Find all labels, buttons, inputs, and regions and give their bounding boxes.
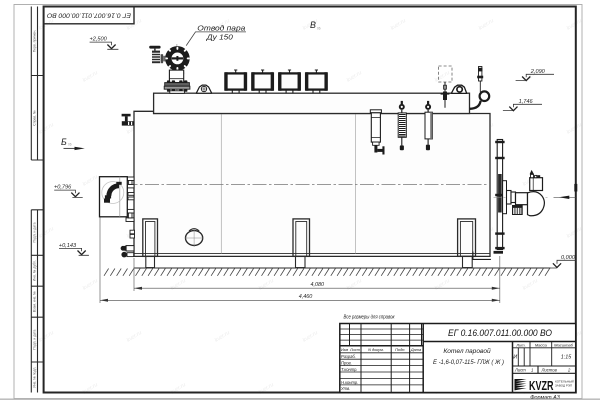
svg-text:Инв. № подл.: Инв. № подл. <box>32 367 36 388</box>
svg-text:+0,796: +0,796 <box>54 185 72 191</box>
svg-text:Дата: Дата <box>410 347 422 352</box>
svg-text:Ду 150: Ду 150 <box>206 32 234 41</box>
svg-text:Н.контр.: Н.контр. <box>341 380 358 385</box>
svg-text:N докум.: N докум. <box>368 347 384 352</box>
svg-text:Масштаб: Масштаб <box>554 342 573 347</box>
svg-text:Т.контр.: Т.контр. <box>341 367 358 372</box>
svg-text:Разраб.: Разраб. <box>341 354 356 359</box>
svg-text:1,746: 1,746 <box>519 99 534 105</box>
svg-text:Лист: Лист <box>349 347 361 352</box>
svg-text:Отвод пара: Отвод пара <box>197 23 245 32</box>
svg-text:+2,500: +2,500 <box>90 37 108 43</box>
svg-text:+0,143: +0,143 <box>59 243 77 249</box>
svg-text:06: 06 <box>317 27 321 31</box>
svg-text:Перв. примен.: Перв. примен. <box>32 30 36 53</box>
svg-text:Инв. № дубл.: Инв. № дубл. <box>32 260 36 281</box>
svg-text:06: 06 <box>68 143 72 147</box>
svg-text:Подп. и дата: Подп. и дата <box>32 222 36 242</box>
svg-text:4,080: 4,080 <box>311 282 325 288</box>
svg-text:Е -1,6-0,07-115- ГЛЖ ( Ж ): Е -1,6-0,07-115- ГЛЖ ( Ж ) <box>433 360 504 366</box>
svg-text:Масса: Масса <box>535 342 548 347</box>
svg-text:Лист: Лист <box>514 368 526 373</box>
svg-text:1:15: 1:15 <box>561 354 572 360</box>
svg-text:Листов: Листов <box>541 368 558 373</box>
svg-text:Утв.: Утв. <box>341 386 350 391</box>
svg-text:Справ. №: Справ. № <box>32 110 36 126</box>
svg-text:ЕГ 0.16.007.011.00.000 ВО: ЕГ 0.16.007.011.00.000 ВО <box>448 328 552 338</box>
svg-text:ЕГ 0.16.007.011.00.000 ВО: ЕГ 0.16.007.011.00.000 ВО <box>46 12 131 19</box>
svg-text:Подп.: Подп. <box>395 347 405 352</box>
svg-text:В: В <box>310 20 316 30</box>
svg-text:Лит.: Лит. <box>515 342 525 347</box>
svg-text:Подп. и дата: Подп. и дата <box>32 330 36 350</box>
svg-text:Изм: Изм <box>341 347 349 352</box>
svg-text:Котел паровой: Котел паровой <box>443 347 491 355</box>
svg-text:Пров.: Пров. <box>341 360 352 365</box>
svg-text:ЗАВОД РЭП: ЗАВОД РЭП <box>555 384 572 388</box>
svg-text:0,000: 0,000 <box>561 255 576 261</box>
svg-text:1: 1 <box>531 368 533 373</box>
svg-text:4,460: 4,460 <box>299 294 313 300</box>
svg-text:Взам. инв. №: Взам. инв. № <box>32 291 36 312</box>
svg-text:Б: Б <box>61 137 67 147</box>
svg-text:И: И <box>513 355 517 361</box>
svg-text:Все размеры для справок: Все размеры для справок <box>344 314 396 320</box>
svg-text:KVZR: KVZR <box>529 378 554 393</box>
svg-text:2,090: 2,090 <box>530 69 546 75</box>
